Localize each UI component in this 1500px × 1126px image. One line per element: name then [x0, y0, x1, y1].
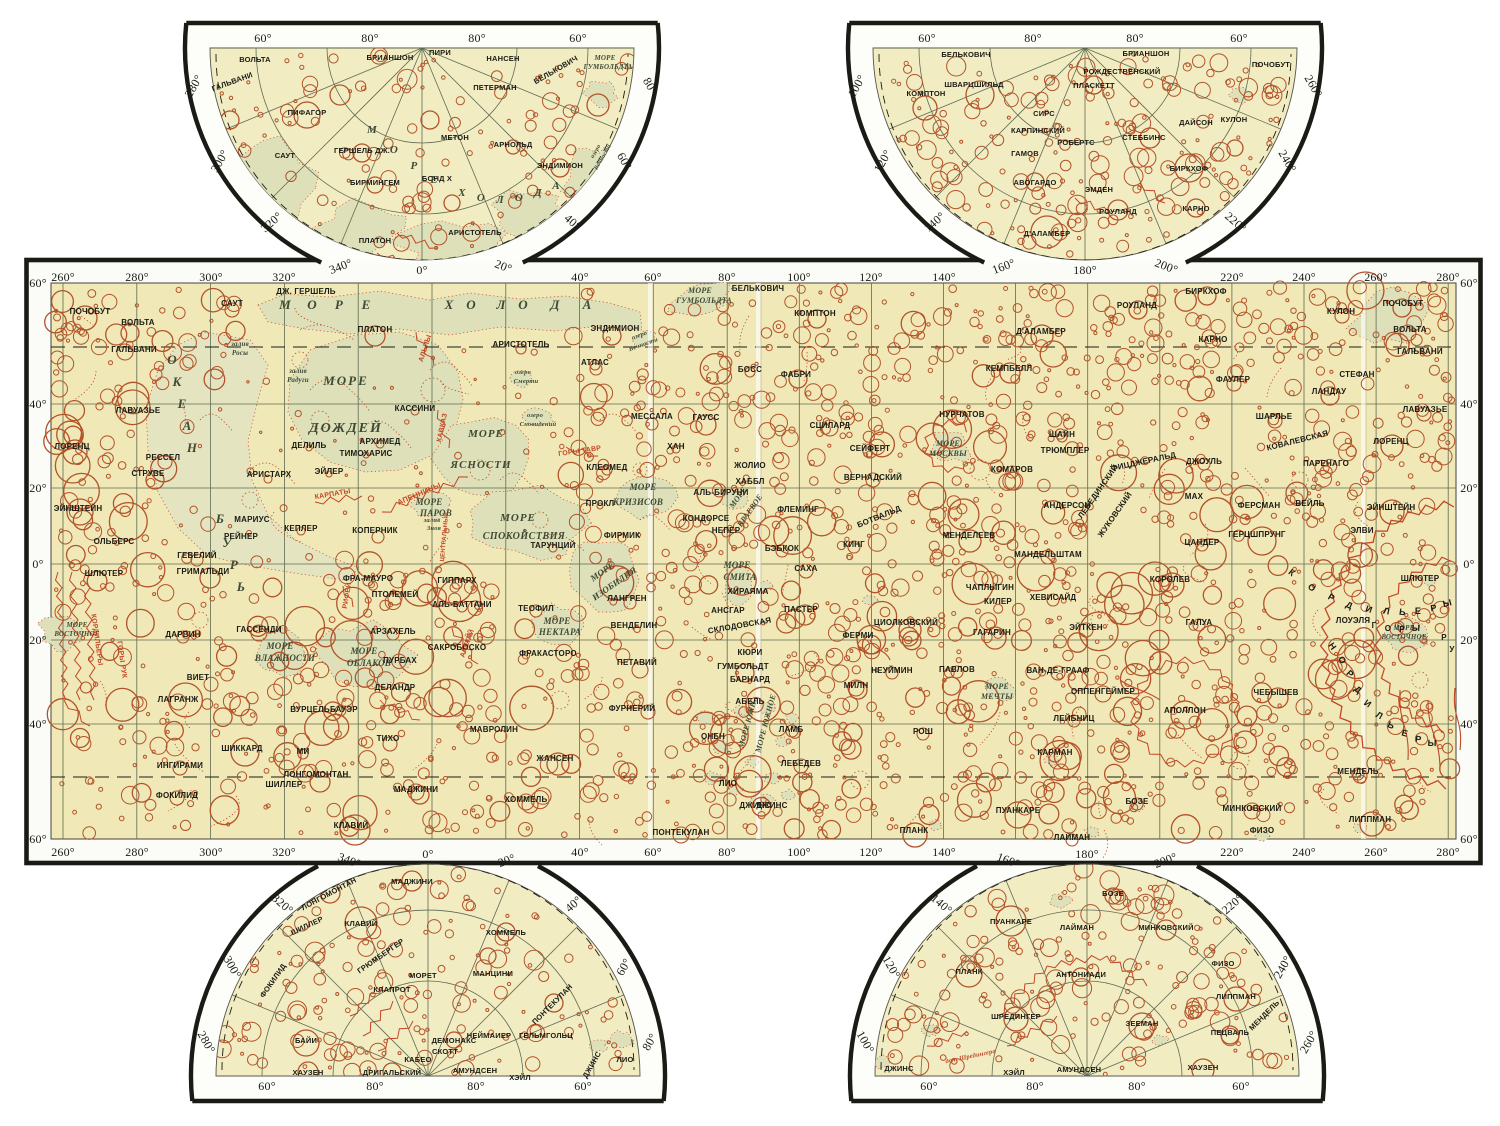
svg-text:АРИСТАРХ: АРИСТАРХ: [247, 470, 292, 479]
svg-text:ЭЙНШТЕЙН: ЭЙНШТЕЙН: [54, 504, 103, 513]
svg-text:ФРАКАСТОРО: ФРАКАСТОРО: [519, 649, 577, 658]
svg-text:ЖАНСЕН: ЖАНСЕН: [536, 754, 574, 763]
svg-text:Ы: Ы: [1427, 738, 1436, 748]
svg-text:ДЖИНС: ДЖИНС: [756, 801, 787, 810]
svg-text:280°: 280°: [125, 270, 149, 284]
svg-text:ВУРЦЕЛЬБАУЭР: ВУРЦЕЛЬБАУЭР: [290, 705, 358, 714]
svg-text:ДАЙСОН: ДАЙСОН: [1179, 118, 1213, 127]
svg-text:РОУЛАНД: РОУЛАНД: [1117, 301, 1157, 310]
svg-text:ДЖ. ГЕРШЕЛЬ: ДЖ. ГЕРШЕЛЬ: [276, 287, 336, 296]
svg-text:КАРНО: КАРНО: [1199, 335, 1228, 344]
svg-text:САУТ: САУТ: [275, 151, 296, 160]
svg-text:20°: 20°: [1460, 633, 1477, 647]
svg-text:80°: 80°: [718, 270, 735, 284]
svg-text:СКОТТ: СКОТТ: [432, 1047, 458, 1056]
svg-text:ЖОЛИО: ЖОЛИО: [733, 461, 766, 470]
svg-text:ПИРИ: ПИРИ: [429, 48, 451, 57]
svg-text:ФУРНЕРИЙ: ФУРНЕРИЙ: [609, 704, 655, 713]
svg-text:60°: 60°: [1232, 1079, 1249, 1093]
svg-text:КЛАВИЙ: КЛАВИЙ: [345, 919, 378, 928]
svg-text:Ь: Ь: [236, 579, 245, 594]
svg-text:НЕУЙМИН: НЕУЙМИН: [871, 666, 912, 675]
svg-text:ШИЛЛЕР: ШИЛЛЕР: [266, 780, 303, 789]
svg-text:ЭНДИМИОН: ЭНДИМИОН: [537, 161, 583, 170]
svg-text:ПУАНКАРЕ: ПУАНКАРЕ: [990, 917, 1032, 926]
svg-text:САКРОБОСКО: САКРОБОСКО: [428, 643, 487, 652]
svg-text:ФАБРИ: ФАБРИ: [781, 370, 811, 379]
svg-text:МАДЖИНИ: МАДЖИНИ: [391, 877, 433, 886]
svg-text:Радуги: Радуги: [287, 376, 309, 384]
svg-text:ВИЕТ: ВИЕТ: [187, 673, 210, 682]
svg-text:АРИСТОТЕЛЬ: АРИСТОТЕЛЬ: [448, 228, 502, 237]
svg-text:ХАУЗЕН: ХАУЗЕН: [292, 1068, 323, 1077]
svg-text:МЕССАЛА: МЕССАЛА: [631, 412, 673, 421]
svg-text:80°: 80°: [468, 31, 485, 45]
svg-text:ХОММЕЛЬ: ХОММЕЛЬ: [486, 928, 527, 937]
svg-text:ГАМОВ: ГАМОВ: [1011, 149, 1039, 158]
svg-text:ЛАЙМАН: ЛАЙМАН: [1054, 833, 1091, 842]
svg-text:ГУМБОЛЬДТА: ГУМБОЛЬДТА: [582, 63, 632, 71]
svg-text:ПОЧОБУТ: ПОЧОБУТ: [1383, 299, 1424, 308]
svg-text:БАРНАРД: БАРНАРД: [730, 675, 770, 684]
svg-text:0°: 0°: [422, 847, 433, 861]
svg-text:РОЖДЕСТВЕНСКИЙ: РОЖДЕСТВЕНСКИЙ: [1084, 67, 1161, 76]
svg-text:ФРА-МАУРО: ФРА-МАУРО: [343, 574, 393, 583]
svg-text:СТЕФАН: СТЕФАН: [1339, 370, 1374, 379]
svg-text:Е: Е: [361, 297, 371, 312]
svg-text:0°: 0°: [1463, 557, 1474, 571]
svg-text:КЕПЛЕР: КЕПЛЕР: [284, 524, 318, 533]
svg-text:О: О: [167, 352, 177, 367]
svg-text:ПАВЛОВ: ПАВЛОВ: [939, 665, 975, 674]
svg-text:ЛИО: ЛИО: [719, 779, 737, 788]
svg-text:60°: 60°: [1460, 832, 1477, 846]
svg-text:А: А: [182, 418, 192, 433]
svg-text:260°: 260°: [1364, 270, 1388, 284]
svg-text:ПТОЛЕМЕЙ: ПТОЛЕМЕЙ: [372, 590, 419, 599]
svg-text:МОРЕ: МОРЕ: [723, 560, 751, 570]
svg-text:0°: 0°: [32, 557, 43, 571]
svg-text:озеро: озеро: [527, 412, 544, 419]
svg-text:ЛИО: ЛИО: [616, 1055, 633, 1064]
svg-text:Х: Х: [457, 187, 466, 199]
svg-text:Д: Д: [533, 187, 542, 199]
svg-text:260°: 260°: [51, 270, 75, 284]
svg-text:МОСКВЫ: МОСКВЫ: [928, 449, 967, 458]
svg-text:ДЕЛИЛЬ: ДЕЛИЛЬ: [292, 441, 327, 450]
svg-text:МОРЕ: МОРЕ: [629, 482, 657, 492]
svg-text:МЕТОН: МЕТОН: [441, 133, 469, 142]
svg-text:80°: 80°: [1128, 1079, 1145, 1093]
svg-text:40°: 40°: [1460, 717, 1477, 731]
svg-text:0°: 0°: [416, 263, 427, 277]
svg-text:ХИРАЯМА: ХИРАЯМА: [727, 587, 768, 596]
svg-text:ПУРБАХ: ПУРБАХ: [383, 656, 417, 665]
svg-text:М: М: [278, 297, 291, 312]
svg-text:220°: 220°: [1220, 270, 1244, 284]
svg-text:ШЛЮТЕР: ШЛЮТЕР: [85, 569, 124, 578]
svg-text:80°: 80°: [1024, 31, 1041, 45]
svg-text:140°: 140°: [932, 845, 956, 859]
svg-text:СЦИЛАРД: СЦИЛАРД: [810, 421, 851, 430]
svg-text:БЕЛЬКОВИЧ: БЕЛЬКОВИЧ: [941, 50, 990, 59]
svg-text:ЛАЙМАН: ЛАЙМАН: [1060, 923, 1094, 932]
svg-text:ШАРЛЬЕ: ШАРЛЬЕ: [1256, 412, 1293, 421]
svg-text:Росы: Росы: [232, 349, 248, 357]
svg-text:40°: 40°: [29, 717, 46, 731]
svg-text:КАРМАН: КАРМАН: [1037, 748, 1072, 757]
svg-text:АРНОЛЬД: АРНОЛЬД: [494, 140, 533, 149]
svg-text:О: О: [1385, 624, 1391, 633]
svg-text:60°: 60°: [1460, 276, 1477, 290]
svg-text:КЕМПБЕЛЛ: КЕМПБЕЛЛ: [986, 364, 1033, 373]
svg-text:ДЖОУЛЬ: ДЖОУЛЬ: [1186, 457, 1222, 466]
svg-text:залив: залив: [423, 517, 441, 524]
svg-text:КИЛЕР: КИЛЕР: [984, 597, 1012, 606]
svg-text:БРИАНШОН: БРИАНШОН: [1122, 49, 1169, 58]
svg-text:МОРЕ: МОРЕ: [935, 439, 960, 448]
svg-text:ЛОУЭЛЯ: ЛОУЭЛЯ: [1336, 616, 1371, 625]
svg-text:60°: 60°: [644, 270, 661, 284]
svg-text:Д'АЛАМБЕР: Д'АЛАМБЕР: [1016, 327, 1066, 336]
svg-text:ПЛАСКЕТТ: ПЛАСКЕТТ: [1073, 81, 1115, 90]
svg-text:Ы: Ы: [1412, 624, 1420, 633]
svg-text:ГРИМАЛЬДИ: ГРИМАЛЬДИ: [177, 567, 230, 576]
svg-text:ЛАНДАУ: ЛАНДАУ: [1312, 387, 1347, 396]
svg-text:М: М: [366, 124, 378, 136]
svg-text:ЛАВУАЗЬЕ: ЛАВУАЗЬЕ: [116, 406, 161, 415]
svg-text:залив: залив: [288, 367, 307, 375]
svg-text:АВОГАРДО: АВОГАРДО: [1014, 178, 1057, 187]
svg-text:Смерти: Смерти: [514, 378, 539, 385]
svg-text:ДЕЛАНДР: ДЕЛАНДР: [375, 683, 416, 692]
svg-text:ГАЛЬВАНИ: ГАЛЬВАНИ: [1397, 347, 1443, 356]
svg-text:О: О: [466, 297, 476, 312]
svg-text:ЭЙЛЕР: ЭЙЛЕР: [315, 467, 344, 476]
svg-text:Е: Е: [177, 396, 187, 411]
svg-text:ЛАВУАЗЬЕ: ЛАВУАЗЬЕ: [1403, 405, 1448, 414]
svg-text:О: О: [390, 144, 398, 156]
svg-text:КЮРИ: КЮРИ: [737, 648, 762, 657]
svg-text:120°: 120°: [859, 845, 883, 859]
svg-text:80°: 80°: [718, 845, 735, 859]
svg-text:ГЕВЕЛИЙ: ГЕВЕЛИЙ: [177, 551, 217, 560]
svg-text:ПАРЕНАГО: ПАРЕНАГО: [1303, 459, 1349, 468]
svg-text:НАНСЕН: НАНСЕН: [486, 54, 519, 63]
svg-text:ВОЛЬТА: ВОЛЬТА: [1393, 325, 1427, 334]
svg-text:ШРЕДИНГЕР: ШРЕДИНГЕР: [991, 1012, 1041, 1021]
svg-text:ЭЛВИ: ЭЛВИ: [1350, 526, 1373, 535]
svg-text:КРИЗИСОВ: КРИЗИСОВ: [612, 497, 663, 507]
svg-text:Р: Р: [1441, 633, 1447, 642]
svg-text:МОРЕ: МОРЕ: [65, 621, 87, 629]
svg-text:ПЛАТОН: ПЛАТОН: [358, 325, 393, 334]
svg-text:МОРЕ: МОРЕ: [266, 641, 294, 651]
svg-text:ПЛАНК: ПЛАНК: [955, 967, 982, 976]
svg-text:БЕЛЬКОВИЧ: БЕЛЬКОВИЧ: [732, 284, 785, 293]
svg-text:МЕНДЕЛЕЕВ: МЕНДЕЛЕЕВ: [943, 531, 996, 540]
svg-text:ЛЕЙБНИЦ: ЛЕЙБНИЦ: [1053, 714, 1094, 723]
svg-text:ХЭЙЛ: ХЭЙЛ: [509, 1073, 531, 1082]
svg-text:Зноя: Зноя: [426, 525, 442, 532]
svg-text:ЧЕБЫШЕВ: ЧЕБЫШЕВ: [1253, 688, 1298, 697]
svg-text:ТИХО: ТИХО: [377, 734, 400, 743]
svg-text:20°: 20°: [29, 481, 46, 495]
svg-text:МЕНДЕЛЬ: МЕНДЕЛЬ: [1337, 767, 1379, 776]
svg-text:ПАСТЕР: ПАСТЕР: [784, 605, 818, 614]
svg-text:ШЛЮТЕР: ШЛЮТЕР: [1401, 574, 1440, 583]
svg-text:МОРЕ: МОРЕ: [499, 512, 536, 524]
svg-text:КУЛОН: КУЛОН: [1327, 307, 1355, 316]
svg-text:МОРЕ: МОРЕ: [984, 682, 1009, 691]
svg-text:ШИККАРД: ШИККАРД: [221, 744, 262, 753]
svg-text:КЛАВИЙ: КЛАВИЙ: [334, 821, 369, 830]
svg-text:СИРС: СИРС: [1033, 109, 1055, 118]
svg-text:ЯСНОСТИ: ЯСНОСТИ: [449, 459, 511, 471]
svg-text:МИНКОВСКИЙ: МИНКОВСКИЙ: [1223, 804, 1282, 813]
svg-text:РОУЛАНД: РОУЛАНД: [1099, 207, 1137, 216]
svg-text:Д'АЛАМБЕР: Д'АЛАМБЕР: [1024, 229, 1071, 238]
svg-text:РОШ: РОШ: [913, 727, 933, 736]
svg-text:ТРЮМПЛЕР: ТРЮМПЛЕР: [1041, 446, 1090, 455]
svg-text:80°: 80°: [361, 31, 378, 45]
svg-text:АРЗАХЕЛЬ: АРЗАХЕЛЬ: [370, 627, 415, 636]
svg-text:ЛИППМАН: ЛИППМАН: [1216, 992, 1256, 1001]
svg-text:МИНКОВСКИЙ: МИНКОВСКИЙ: [1138, 923, 1193, 932]
svg-text:60°: 60°: [644, 845, 661, 859]
svg-text:180°: 180°: [1075, 847, 1099, 861]
svg-text:ЛОРЕНЦ: ЛОРЕНЦ: [54, 442, 89, 451]
svg-text:Л: Л: [495, 194, 504, 206]
svg-text:КАБЕО: КАБЕО: [404, 1055, 431, 1064]
svg-text:БОСС: БОСС: [738, 365, 762, 374]
svg-text:БИРМИНГЕМ: БИРМИНГЕМ: [350, 178, 400, 187]
svg-text:ГАУСС: ГАУСС: [692, 413, 719, 422]
svg-text:260°: 260°: [51, 845, 75, 859]
svg-text:ПОНТЕКУЛАН: ПОНТЕКУЛАН: [653, 828, 710, 837]
svg-text:МИ: МИ: [297, 747, 310, 756]
svg-text:ЭМДЕН: ЭМДЕН: [1085, 185, 1113, 194]
svg-text:260°: 260°: [1364, 845, 1388, 859]
svg-text:БИРКХОФ: БИРКХОФ: [1185, 287, 1226, 296]
svg-text:ХАУЗЕН: ХАУЗЕН: [1187, 1063, 1218, 1072]
svg-text:КИНГ: КИНГ: [843, 540, 865, 549]
svg-text:МОРЕТ: МОРЕТ: [409, 971, 437, 980]
svg-text:ГУМБОЛЬДТА: ГУМБОЛЬДТА: [675, 296, 732, 305]
svg-text:40°: 40°: [1460, 397, 1477, 411]
svg-text:О: О: [477, 192, 485, 204]
svg-text:ТИМОХАРИС: ТИМОХАРИС: [340, 449, 393, 458]
svg-text:ГАЛЬВАНИ: ГАЛЬВАНИ: [111, 345, 157, 354]
svg-text:КОПЕРНИК: КОПЕРНИК: [352, 526, 398, 535]
svg-text:КОРОЛЕВ: КОРОЛЕВ: [1150, 575, 1191, 584]
svg-text:ЧАПЛЫГИН: ЧАПЛЫГИН: [966, 583, 1014, 592]
svg-text:ЭЙТКЕН: ЭЙТКЕН: [1069, 623, 1103, 632]
svg-text:О: О: [518, 297, 528, 312]
svg-text:ПЕЦВАЛЬ: ПЕЦВАЛЬ: [1211, 1028, 1250, 1037]
svg-text:САУТ: САУТ: [221, 299, 243, 308]
svg-text:озеро: озеро: [515, 369, 532, 376]
svg-text:К: К: [171, 374, 182, 389]
svg-text:КАРПИНСКИЙ: КАРПИНСКИЙ: [1011, 126, 1065, 135]
svg-text:220°: 220°: [1220, 845, 1244, 859]
svg-text:РОБЕРТС: РОБЕРТС: [1057, 138, 1095, 147]
svg-text:ФИЗО: ФИЗО: [1211, 959, 1234, 968]
svg-text:Сновидений: Сновидений: [520, 421, 557, 428]
svg-text:80°: 80°: [1026, 1079, 1043, 1093]
svg-text:ФИРМИК: ФИРМИК: [604, 531, 640, 540]
svg-text:МИЛН: МИЛН: [844, 681, 869, 690]
svg-text:ФИЗО: ФИЗО: [1250, 826, 1275, 835]
svg-text:О: О: [307, 297, 317, 312]
svg-text:КАРНО: КАРНО: [1182, 204, 1209, 213]
svg-text:ЛАГРАНЖ: ЛАГРАНЖ: [158, 695, 199, 704]
svg-text:ПЕТЕРМАН: ПЕТЕРМАН: [473, 83, 517, 92]
svg-text:120°: 120°: [859, 270, 883, 284]
svg-text:МАНДЕЛЬШТАМ: МАНДЕЛЬШТАМ: [1014, 550, 1082, 559]
svg-text:ВОЛЬТА: ВОЛЬТА: [121, 318, 155, 327]
svg-text:ГИППАРХ: ГИППАРХ: [437, 576, 477, 585]
svg-text:АЛЬ-БИРУНИ: АЛЬ-БИРУНИ: [693, 488, 748, 497]
svg-text:РЕЙНЕР: РЕЙНЕР: [224, 532, 259, 541]
svg-text:ШАЙН: ШАЙН: [1049, 430, 1075, 439]
svg-text:Р: Р: [1399, 625, 1405, 634]
svg-text:МОРЕ: МОРЕ: [350, 646, 378, 656]
svg-text:40°: 40°: [29, 397, 46, 411]
svg-text:СЕЙФЕРТ: СЕЙФЕРТ: [850, 444, 891, 453]
svg-text:ЦАНДЕР: ЦАНДЕР: [1185, 538, 1220, 547]
svg-text:ДРИГАЛЬСКИЙ: ДРИГАЛЬСКИЙ: [363, 1068, 421, 1077]
svg-text:ВОЛЬТА: ВОЛЬТА: [239, 55, 271, 64]
svg-text:СТЕББИНС: СТЕББИНС: [1122, 133, 1166, 142]
svg-text:60°: 60°: [574, 1079, 591, 1093]
svg-text:40°: 40°: [571, 270, 588, 284]
svg-text:ГАССЕНДИ: ГАССЕНДИ: [236, 625, 281, 634]
svg-text:АМУНДСЕН: АМУНДСЕН: [1057, 1065, 1102, 1074]
svg-text:ГАЛУА: ГАЛУА: [1186, 618, 1213, 627]
svg-text:320°: 320°: [272, 270, 296, 284]
svg-text:140°: 140°: [932, 270, 956, 284]
svg-text:240°: 240°: [1292, 270, 1316, 284]
svg-text:КЛАПРОТ: КЛАПРОТ: [373, 985, 410, 994]
svg-text:60°: 60°: [569, 31, 586, 45]
svg-text:МОРЕ: МОРЕ: [467, 428, 504, 440]
svg-text:Л: Л: [495, 297, 506, 312]
svg-text:НЕЙМАИЕР: НЕЙМАИЕР: [467, 1031, 511, 1040]
svg-text:ТЕОФИЛ: ТЕОФИЛ: [518, 604, 554, 613]
svg-text:БЭБКОК: БЭБКОК: [765, 544, 799, 553]
svg-text:ХАББЛ: ХАББЛ: [735, 477, 764, 486]
svg-text:ФОКИЛИД: ФОКИЛИД: [156, 791, 198, 800]
svg-text:80°: 80°: [366, 1079, 383, 1093]
svg-text:300°: 300°: [199, 270, 223, 284]
svg-text:ФАУЛЕР: ФАУЛЕР: [1216, 375, 1251, 384]
svg-text:Б: Б: [215, 511, 224, 526]
svg-text:КАССИНИ: КАССИНИ: [395, 404, 436, 413]
svg-text:НУРЧАТОВ: НУРЧАТОВ: [939, 410, 984, 419]
svg-text:НЕКТАРА: НЕКТАРА: [538, 627, 581, 637]
svg-text:ГЕРЦШПРУНГ: ГЕРЦШПРУНГ: [1228, 530, 1286, 539]
svg-text:МОРЕ: МОРЕ: [543, 616, 571, 626]
svg-text:МОРЕ: МОРЕ: [322, 373, 369, 388]
svg-text:280°: 280°: [1436, 270, 1460, 284]
svg-text:А: А: [551, 180, 560, 192]
svg-text:ЦИОЛКОВСКИЙ: ЦИОЛКОВСКИЙ: [874, 618, 938, 627]
svg-text:БОЗЕ: БОЗЕ: [1102, 889, 1124, 898]
svg-text:МАХ: МАХ: [1185, 492, 1204, 501]
svg-text:ПИФАГОР: ПИФАГОР: [288, 108, 327, 117]
svg-text:ЛОНГОМОНТАН: ЛОНГОМОНТАН: [283, 770, 348, 779]
svg-text:ЛАНГРЕН: ЛАНГРЕН: [607, 594, 647, 603]
svg-text:320°: 320°: [272, 845, 296, 859]
svg-text:АЛЬ-БАТТАНИ: АЛЬ-БАТТАНИ: [432, 600, 492, 609]
svg-text:Г: Г: [1372, 621, 1377, 630]
svg-text:80°: 80°: [1126, 31, 1143, 45]
svg-text:40°: 40°: [571, 845, 588, 859]
svg-text:ПОЧОБУТ: ПОЧОБУТ: [1252, 60, 1290, 69]
svg-text:БОЗЕ: БОЗЕ: [1125, 797, 1149, 806]
svg-text:ОППЕНГЕЙМЕР: ОППЕНГЕЙМЕР: [1071, 687, 1135, 696]
svg-text:Н: Н: [186, 440, 198, 455]
svg-text:ХЕВИСАЙД: ХЕВИСАЙД: [1030, 593, 1077, 602]
svg-text:ЭЙНШТЕЙН: ЭЙНШТЕЙН: [1367, 503, 1416, 512]
svg-text:Р: Р: [230, 557, 239, 572]
svg-text:залив: залив: [230, 340, 249, 348]
svg-text:КУЛОН: КУЛОН: [1221, 115, 1248, 124]
svg-text:100°: 100°: [787, 270, 811, 284]
svg-text:МАДЖИНИ: МАДЖИНИ: [394, 785, 438, 794]
svg-text:ПОЧОБУТ: ПОЧОБУТ: [70, 307, 111, 316]
svg-text:300°: 300°: [199, 845, 223, 859]
svg-text:ИНГИРАМИ: ИНГИРАМИ: [157, 761, 203, 770]
svg-text:О: О: [515, 192, 523, 204]
svg-text:60°: 60°: [918, 31, 935, 45]
svg-text:20°: 20°: [1460, 481, 1477, 495]
svg-text:60°: 60°: [920, 1079, 937, 1093]
svg-text:АРХИМЕД: АРХИМЕД: [360, 437, 401, 446]
svg-text:280°: 280°: [1436, 845, 1460, 859]
svg-text:ГУМБОЛЬДТ: ГУМБОЛЬДТ: [717, 662, 769, 671]
svg-text:100°: 100°: [787, 845, 811, 859]
svg-text:ОЛЬБЕРС: ОЛЬБЕРС: [94, 537, 135, 546]
svg-text:АПОЛЛОН: АПОЛЛОН: [1164, 706, 1206, 715]
svg-text:280°: 280°: [125, 845, 149, 859]
svg-text:БИРКХОФ: БИРКХОФ: [1170, 164, 1209, 173]
svg-text:МОРЕ: МОРЕ: [687, 286, 712, 295]
svg-text:Е: Е: [1415, 606, 1421, 616]
svg-text:ДОЖДЕЙ: ДОЖДЕЙ: [307, 418, 383, 436]
svg-text:ПЕТАВИЙ: ПЕТАВИЙ: [617, 658, 657, 667]
svg-text:МОРЕ: МОРЕ: [593, 54, 615, 62]
svg-text:ПРОКЛ: ПРОКЛ: [586, 499, 615, 508]
svg-text:20°: 20°: [29, 633, 46, 647]
svg-text:ХЭЙЛ: ХЭЙЛ: [1003, 1068, 1025, 1077]
svg-text:А: А: [582, 297, 592, 312]
svg-text:АМУНДСЕН: АМУНДСЕН: [453, 1066, 498, 1075]
svg-text:ШВАРЦШИЛЬД: ШВАРЦШИЛЬД: [944, 80, 1004, 89]
svg-text:ВАН-ДЕ-ГРААФ: ВАН-ДЕ-ГРААФ: [1026, 666, 1089, 675]
svg-text:АБЕЛЬ: АБЕЛЬ: [735, 697, 764, 706]
svg-text:КОМАРОВ: КОМАРОВ: [991, 465, 1033, 474]
svg-text:ЭНДИМИОН: ЭНДИМИОН: [591, 324, 640, 333]
svg-text:60°: 60°: [29, 276, 46, 290]
svg-text:ВЕНДЕЛИН: ВЕНДЕЛИН: [611, 621, 658, 630]
svg-text:ФЛЕМИНГ: ФЛЕМИНГ: [777, 505, 819, 514]
svg-text:60°: 60°: [29, 832, 46, 846]
svg-text:МАРИУС: МАРИУС: [234, 515, 270, 524]
svg-text:ЗЕЕМАН: ЗЕЕМАН: [1126, 1019, 1159, 1028]
svg-text:ВЕРНАДСКИЙ: ВЕРНАДСКИЙ: [844, 473, 902, 482]
